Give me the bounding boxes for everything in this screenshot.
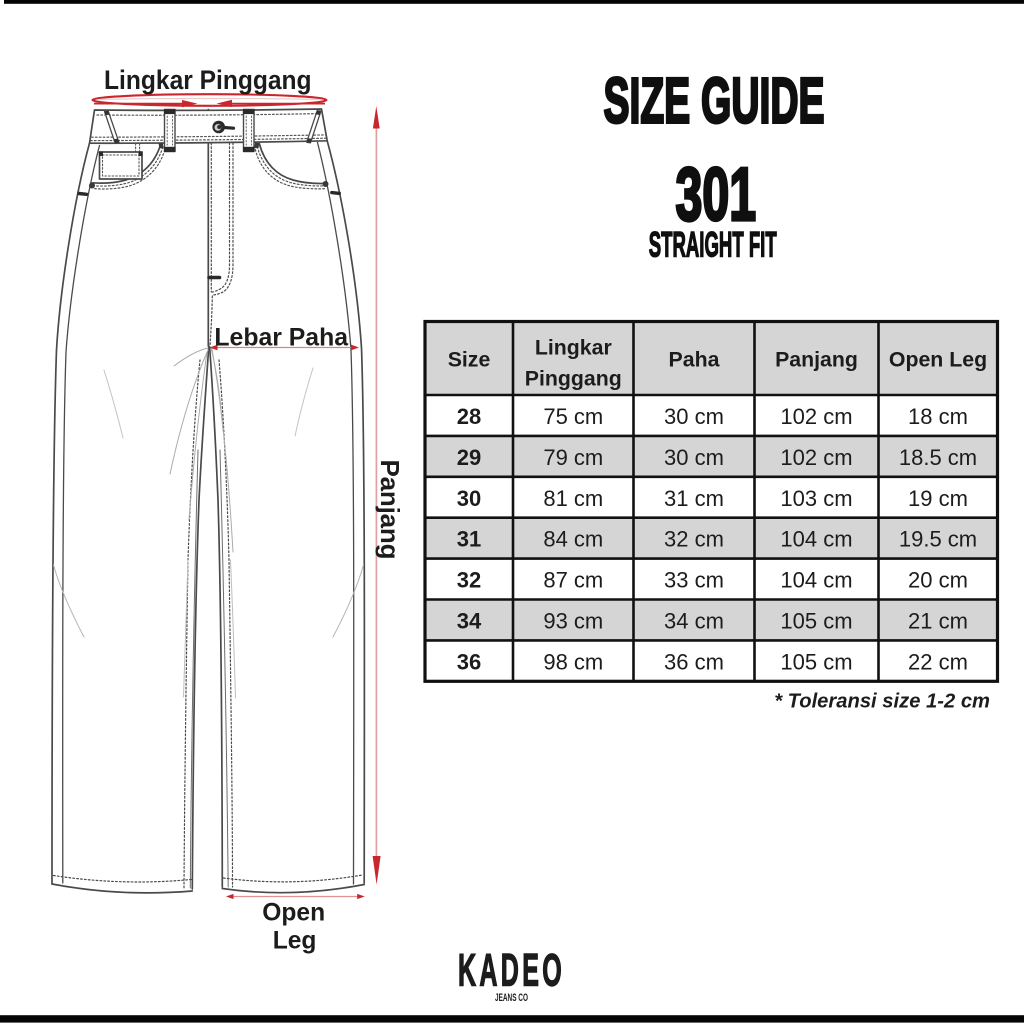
svg-text:30 cm: 30 cm [664,404,724,429]
svg-text:Pinggang: Pinggang [525,366,622,390]
svg-text:103 cm: 103 cm [780,486,852,511]
svg-text:81 cm: 81 cm [543,486,603,511]
svg-text:84 cm: 84 cm [543,527,603,552]
svg-text:32: 32 [457,568,481,593]
svg-text:Panjang: Panjang [775,348,858,372]
svg-text:30 cm: 30 cm [664,445,724,470]
svg-text:Size: Size [448,348,491,372]
svg-text:STRAIGHT FIT: STRAIGHT FIT [649,225,777,265]
svg-text:Open Leg: Open Leg [889,348,987,372]
svg-text:Lingkar: Lingkar [535,335,612,359]
svg-text:19.5 cm: 19.5 cm [899,527,977,552]
svg-text:36 cm: 36 cm [664,649,724,674]
svg-text:34: 34 [457,609,482,634]
svg-text:102 cm: 102 cm [780,445,852,470]
svg-text:87 cm: 87 cm [543,568,603,593]
svg-text:104 cm: 104 cm [780,568,852,593]
svg-text:22 cm: 22 cm [908,649,968,674]
svg-text:29: 29 [457,445,481,470]
svg-text:SIZE GUIDE: SIZE GUIDE [604,64,825,136]
svg-text:34 cm: 34 cm [664,609,724,634]
svg-text:Lingkar Pinggang: Lingkar Pinggang [104,65,312,95]
svg-text:102 cm: 102 cm [780,404,852,429]
svg-text:18 cm: 18 cm [908,404,968,429]
svg-text:105 cm: 105 cm [780,609,852,634]
svg-text:Paha: Paha [669,348,720,372]
svg-text:* Toleransi size 1-2 cm: * Toleransi size 1-2 cm [774,691,990,713]
svg-text:104 cm: 104 cm [780,527,852,552]
svg-text:KADEO: KADEO [458,945,565,996]
svg-text:301: 301 [676,152,757,236]
svg-text:20 cm: 20 cm [908,568,968,593]
svg-text:19 cm: 19 cm [908,486,968,511]
svg-text:31: 31 [457,527,481,552]
svg-text:31 cm: 31 cm [664,486,724,511]
svg-text:30: 30 [457,486,481,511]
svg-text:18.5 cm: 18.5 cm [899,445,977,470]
svg-text:79 cm: 79 cm [543,445,603,470]
svg-text:Panjang: Panjang [375,460,405,560]
svg-text:32 cm: 32 cm [664,527,724,552]
svg-text:33 cm: 33 cm [664,568,724,593]
svg-text:21 cm: 21 cm [908,609,968,634]
svg-text:93 cm: 93 cm [543,609,603,634]
svg-text:Lebar Paha: Lebar Paha [214,325,348,352]
svg-text:28: 28 [457,404,481,429]
svg-text:36: 36 [457,649,481,674]
svg-text:98 cm: 98 cm [543,649,603,674]
svg-text:Open: Open [262,900,325,927]
svg-text:JEANS CO: JEANS CO [495,992,528,1004]
svg-text:105 cm: 105 cm [780,649,852,674]
svg-text:75 cm: 75 cm [543,404,603,429]
svg-text:Leg: Leg [273,928,317,955]
